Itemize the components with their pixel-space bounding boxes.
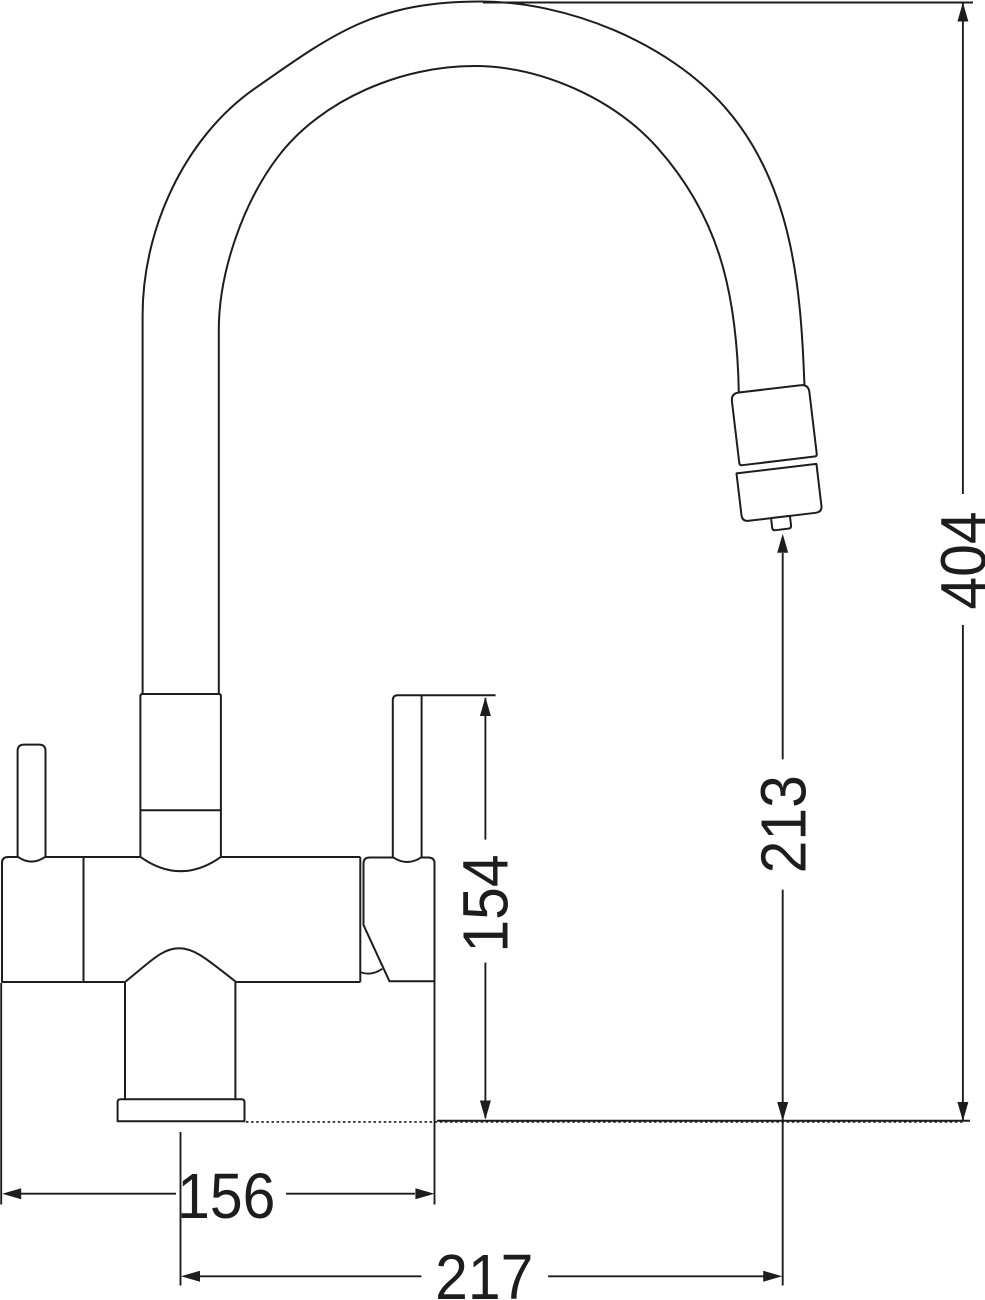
svg-text:213: 213 xyxy=(748,775,820,873)
svg-text:154: 154 xyxy=(450,854,522,952)
svg-text:156: 156 xyxy=(177,1161,275,1233)
svg-text:217: 217 xyxy=(435,1242,533,1300)
svg-text:404: 404 xyxy=(928,511,985,609)
